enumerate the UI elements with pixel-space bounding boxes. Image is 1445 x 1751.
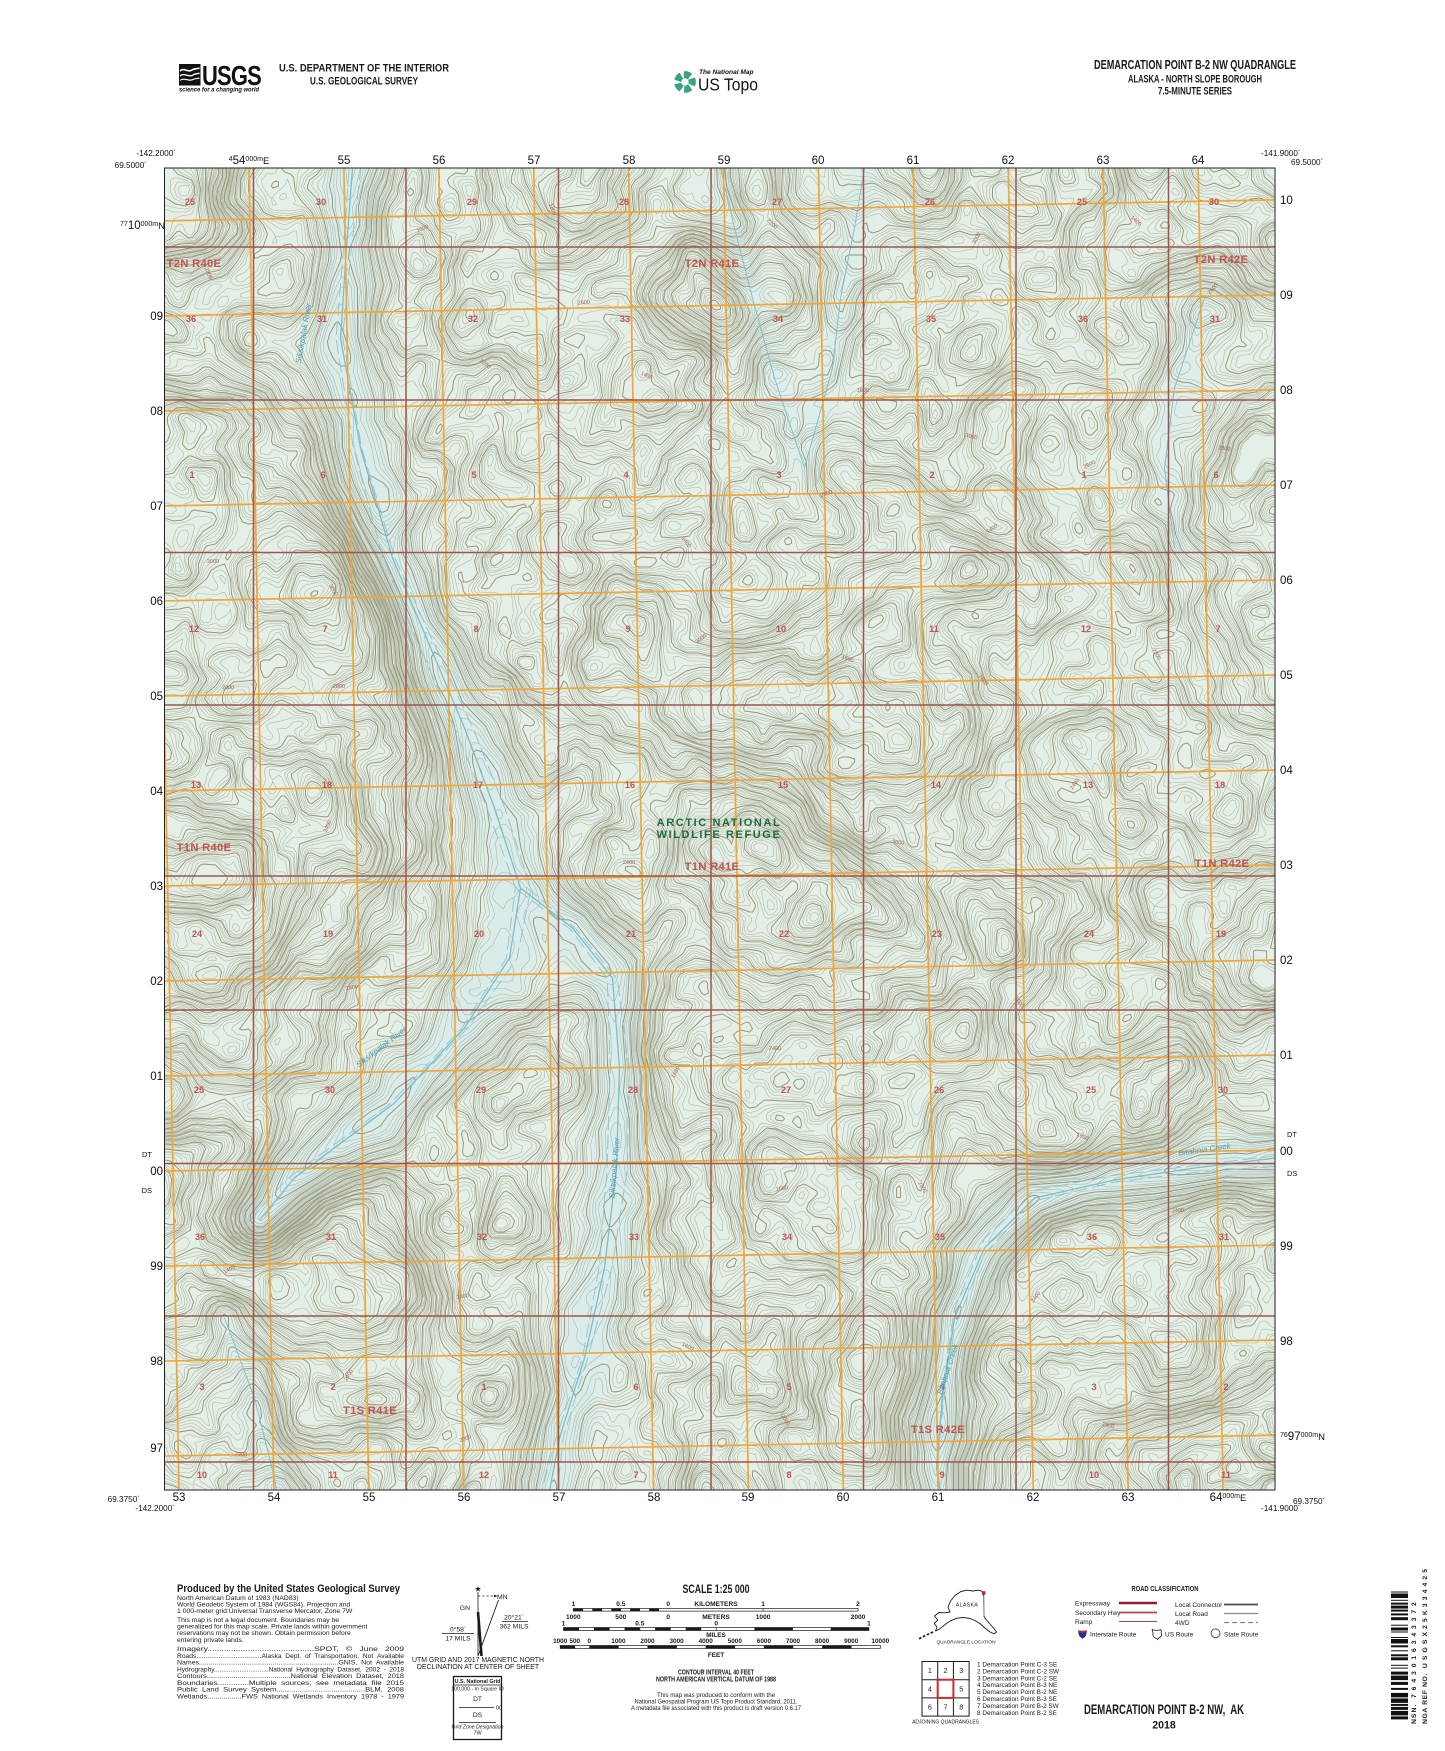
svg-text:UTM GRID AND 2017 MAGNETIC NOR: UTM GRID AND 2017 MAGNETIC NORTH <box>412 1657 544 1664</box>
svg-text:69.5000´: 69.5000´ <box>1291 158 1323 167</box>
svg-text:DEMARCATION POINT B-2 NW QUADR: DEMARCATION POINT B-2 NW QUADRANGLE <box>1094 57 1296 72</box>
svg-text:7000: 7000 <box>786 1638 801 1645</box>
svg-text:98: 98 <box>150 1356 163 1368</box>
svg-text:3000: 3000 <box>669 1638 684 1645</box>
svg-text:11: 11 <box>929 624 939 634</box>
svg-text:DS: DS <box>473 1712 483 1719</box>
svg-text:05: 05 <box>1280 670 1293 682</box>
svg-text:98: 98 <box>1280 1336 1293 1348</box>
svg-text:ROAD CLASSIFICATION: ROAD CLASSIFICATION <box>1132 1584 1199 1593</box>
svg-text:26: 26 <box>934 1085 944 1095</box>
svg-text:13: 13 <box>1083 780 1093 790</box>
svg-text:T1S R41E: T1S R41E <box>343 1405 397 1417</box>
svg-text:6: 6 <box>928 1703 932 1712</box>
svg-text:3: 3 <box>959 1666 963 1675</box>
svg-text:1: 1 <box>1081 470 1086 480</box>
svg-text:25: 25 <box>194 1085 204 1095</box>
svg-text:36: 36 <box>186 314 196 324</box>
svg-text:100,000 - m Square ID: 100,000 - m Square ID <box>451 1687 504 1693</box>
svg-text:34: 34 <box>773 314 784 324</box>
svg-text:03: 03 <box>150 881 163 893</box>
svg-text:97: 97 <box>150 1443 163 1455</box>
svg-text:35: 35 <box>926 314 936 324</box>
svg-text:500: 500 <box>569 1638 580 1645</box>
svg-text:2400: 2400 <box>1172 1208 1185 1215</box>
svg-text:25: 25 <box>185 197 195 207</box>
svg-text:26: 26 <box>925 197 935 207</box>
svg-text:8: 8 <box>786 1470 791 1480</box>
svg-text:69.5000´: 69.5000´ <box>115 161 147 170</box>
svg-text:0: 0 <box>714 1621 718 1628</box>
svg-text:36: 36 <box>195 1232 205 1242</box>
svg-text:25: 25 <box>1077 197 1087 207</box>
svg-text:0: 0 <box>666 1601 670 1608</box>
svg-text:01: 01 <box>1280 1050 1293 1062</box>
svg-text:entering private lands.: entering private lands. <box>177 1637 244 1644</box>
svg-text:54: 54 <box>268 1492 281 1504</box>
svg-text:0.5: 0.5 <box>616 1601 625 1608</box>
svg-text:9: 9 <box>939 1470 944 1480</box>
svg-text:55: 55 <box>363 1492 376 1504</box>
svg-text:3: 3 <box>1091 1382 1096 1392</box>
svg-text:06: 06 <box>150 596 163 608</box>
svg-text:20°21´: 20°21´ <box>504 1614 524 1622</box>
svg-text:5: 5 <box>471 470 476 480</box>
svg-text:science for a changing world: science for a changing world <box>179 87 260 94</box>
svg-text:20: 20 <box>474 929 484 939</box>
svg-text:3: 3 <box>776 470 781 480</box>
svg-text:27: 27 <box>772 197 782 207</box>
svg-text:09: 09 <box>1280 290 1293 302</box>
svg-text:A metadata file associated wit: A metadata file associated with this pro… <box>631 1705 801 1712</box>
svg-text:61: 61 <box>907 155 920 167</box>
svg-text:69.3750´: 69.3750´ <box>108 1495 140 1504</box>
svg-text:7: 7 <box>322 624 327 634</box>
svg-text:2: 2 <box>944 1666 948 1675</box>
svg-text:MN: MN <box>497 1594 508 1601</box>
svg-text:59: 59 <box>718 155 731 167</box>
svg-text:T2N R41E: T2N R41E <box>685 258 740 270</box>
svg-text:Secondary Hwy: Secondary Hwy <box>1075 1610 1121 1617</box>
svg-text:2200: 2200 <box>235 1451 248 1458</box>
svg-text:ALASKA: ALASKA <box>956 1603 979 1609</box>
svg-text:QUADRANGLE LOCATION: QUADRANGLE LOCATION <box>936 1640 996 1646</box>
svg-text:24: 24 <box>192 929 203 939</box>
svg-text:10: 10 <box>1089 1470 1099 1480</box>
svg-text:7.5-MINUTE SERIES: 7.5-MINUTE SERIES <box>1158 86 1232 98</box>
svg-text:DS: DS <box>1287 1169 1297 1178</box>
svg-text:29: 29 <box>467 197 477 207</box>
svg-text:2800: 2800 <box>222 685 235 692</box>
svg-text:64: 64 <box>1192 155 1205 167</box>
svg-text:9: 9 <box>625 624 630 634</box>
svg-text:59: 59 <box>742 1492 755 1504</box>
svg-text:53: 53 <box>173 1492 186 1504</box>
svg-text:T1N R40E: T1N R40E <box>177 842 232 854</box>
svg-text:1: 1 <box>189 470 194 480</box>
svg-text:30: 30 <box>1218 1085 1228 1095</box>
svg-text:18: 18 <box>1215 780 1225 790</box>
svg-text:-142.2000´: -142.2000´ <box>136 149 176 158</box>
svg-text:-142.2000´: -142.2000´ <box>135 1504 175 1513</box>
svg-text:0: 0 <box>666 1614 670 1621</box>
svg-text:32: 32 <box>468 314 478 324</box>
svg-text:Interstate Route: Interstate Route <box>1090 1632 1137 1639</box>
svg-text:15: 15 <box>778 780 788 790</box>
svg-text:57: 57 <box>528 155 541 167</box>
svg-text:00: 00 <box>1280 1146 1293 1158</box>
svg-text:00: 00 <box>496 1706 502 1712</box>
svg-text:2: 2 <box>1223 1382 1228 1392</box>
svg-text:62: 62 <box>1002 155 1015 167</box>
svg-text:1000: 1000 <box>553 1638 568 1645</box>
svg-text:14: 14 <box>931 780 942 790</box>
svg-text:30: 30 <box>316 197 326 207</box>
svg-text:24: 24 <box>1084 929 1095 939</box>
svg-text:35: 35 <box>935 1232 945 1242</box>
svg-text:8 Demarcation Point B-2 SE: 8 Demarcation Point B-2 SE <box>977 1710 1057 1717</box>
svg-text:63: 63 <box>1097 155 1110 167</box>
svg-text:62: 62 <box>1027 1492 1040 1504</box>
svg-text:2000: 2000 <box>640 1638 655 1645</box>
svg-text:9000: 9000 <box>844 1638 859 1645</box>
svg-text:2400: 2400 <box>769 1046 782 1053</box>
svg-text:07: 07 <box>1280 480 1293 492</box>
svg-text:Local Road: Local Road <box>1175 1611 1208 1618</box>
svg-text:DECLINATION AT CENTER OF SHEET: DECLINATION AT CENTER OF SHEET <box>417 1664 540 1671</box>
svg-text:4000: 4000 <box>699 1638 714 1645</box>
svg-text:3: 3 <box>199 1382 204 1392</box>
svg-text:36: 36 <box>1078 314 1088 324</box>
svg-text:SCALE 1:25 000: SCALE 1:25 000 <box>683 1582 750 1596</box>
svg-text:12: 12 <box>1081 624 1091 634</box>
svg-text:Produced by the United States: Produced by the United States Geological… <box>177 1583 400 1595</box>
svg-text:8: 8 <box>959 1703 963 1712</box>
svg-text:Ramp: Ramp <box>1075 1619 1093 1626</box>
svg-text:2800: 2800 <box>333 684 345 690</box>
svg-text:02: 02 <box>150 976 163 988</box>
svg-text:03: 03 <box>1280 860 1293 872</box>
svg-text:0°58´: 0°58´ <box>450 1626 466 1634</box>
svg-text:2000: 2000 <box>851 1614 866 1621</box>
svg-text:0.5: 0.5 <box>635 1621 644 1628</box>
svg-text:1600: 1600 <box>857 388 869 394</box>
svg-text:7: 7 <box>633 1470 638 1480</box>
svg-text:US Route: US Route <box>1165 1632 1194 1639</box>
svg-text:4: 4 <box>623 470 629 480</box>
svg-text:99: 99 <box>1280 1241 1293 1253</box>
svg-text:CONTOUR INTERVAL 40 FEET: CONTOUR INTERVAL 40 FEET <box>678 1670 755 1677</box>
svg-text:2: 2 <box>856 1601 860 1608</box>
svg-text:56: 56 <box>433 155 446 167</box>
svg-text:58: 58 <box>623 155 636 167</box>
svg-text:7W: 7W <box>473 1731 482 1737</box>
svg-text:5: 5 <box>786 1382 791 1392</box>
svg-text:1 000-meter grid:Universal Tra: 1 000-meter grid:Universal Transverse Me… <box>177 1608 353 1615</box>
svg-text:DT: DT <box>142 1150 152 1159</box>
svg-text:1: 1 <box>481 1382 486 1392</box>
svg-text:T2N R42E: T2N R42E <box>1194 254 1249 266</box>
svg-text:10: 10 <box>1280 195 1293 207</box>
svg-text:State Route: State Route <box>1224 1632 1259 1639</box>
svg-text:55: 55 <box>338 155 351 167</box>
svg-text:DT: DT <box>1287 1130 1297 1139</box>
svg-text:30: 30 <box>1209 197 1219 207</box>
svg-text:2400: 2400 <box>623 860 635 866</box>
svg-text:21: 21 <box>626 929 636 939</box>
svg-text:23: 23 <box>932 929 942 939</box>
svg-text:U.S. DEPARTMENT OF THE INTERIO: U.S. DEPARTMENT OF THE INTERIOR <box>279 63 449 75</box>
svg-text:1: 1 <box>562 1621 566 1628</box>
svg-text:8: 8 <box>473 624 478 634</box>
svg-text:28: 28 <box>619 197 629 207</box>
svg-text:2018: 2018 <box>1152 1720 1176 1732</box>
svg-text:-141.9000´: -141.9000´ <box>1261 149 1301 158</box>
svg-text:36: 36 <box>1087 1232 1097 1242</box>
svg-text:5000: 5000 <box>728 1638 743 1645</box>
svg-text:4: 4 <box>928 1684 932 1693</box>
svg-text:T1S R42E: T1S R42E <box>911 1424 965 1436</box>
svg-text:FEET: FEET <box>708 1652 724 1659</box>
svg-text:00: 00 <box>150 1166 163 1178</box>
svg-text:08: 08 <box>150 406 163 418</box>
svg-text:6: 6 <box>633 1382 638 1392</box>
svg-text:10000: 10000 <box>871 1638 889 1645</box>
svg-text:04: 04 <box>1280 765 1293 777</box>
svg-text:T2N R40E: T2N R40E <box>167 258 222 270</box>
svg-text:11: 11 <box>328 1470 338 1480</box>
svg-text:3000: 3000 <box>207 559 219 565</box>
svg-text:US Topo: US Topo <box>698 75 758 95</box>
svg-text:KILOMETERS: KILOMETERS <box>694 1601 738 1608</box>
svg-text:60: 60 <box>812 155 825 167</box>
svg-text:DEMARCATION POINT B-2 NW, AK: DEMARCATION POINT B-2 NW, AK <box>1084 1702 1244 1717</box>
svg-text:1000: 1000 <box>611 1638 626 1645</box>
svg-text:DT: DT <box>473 1696 482 1703</box>
svg-text:57: 57 <box>553 1492 566 1504</box>
svg-text:12: 12 <box>479 1470 489 1480</box>
svg-text:0: 0 <box>588 1638 592 1645</box>
svg-text:-141.9000´: -141.9000´ <box>1261 1504 1301 1513</box>
svg-text:DS: DS <box>142 1186 152 1195</box>
svg-text:Local Connector: Local Connector <box>1175 1602 1223 1609</box>
svg-text:ADJOINING QUADRANGLES: ADJOINING QUADRANGLES <box>912 1720 980 1726</box>
svg-text:07: 07 <box>150 501 163 513</box>
svg-text:NGA REF NO. U S G S X 2 5 K 3: NGA REF NO. U S G S X 2 5 K 3 3 4 4 2 5 <box>1422 1568 1429 1724</box>
svg-text:11: 11 <box>1221 1470 1231 1480</box>
svg-text:NSN. 7 6 4 3 0 1 6 3 4 3 3 7: NSN. 7 6 4 3 0 1 6 3 4 3 3 7 2 <box>1411 1601 1418 1724</box>
svg-text:01: 01 <box>150 1071 163 1083</box>
svg-text:16: 16 <box>625 780 635 790</box>
svg-text:6: 6 <box>320 470 325 480</box>
svg-text:99: 99 <box>150 1261 163 1273</box>
svg-text:U.S. National Grid: U.S. National Grid <box>455 1679 501 1685</box>
svg-text:GN: GN <box>460 1605 470 1612</box>
svg-text:2: 2 <box>929 470 934 480</box>
svg-text:5: 5 <box>959 1684 963 1693</box>
svg-text:2600: 2600 <box>577 299 590 306</box>
svg-text:1: 1 <box>928 1666 932 1675</box>
svg-text:31: 31 <box>1210 314 1220 324</box>
svg-text:31: 31 <box>1219 1232 1229 1242</box>
svg-text:60: 60 <box>837 1492 850 1504</box>
svg-text:17: 17 <box>473 780 483 790</box>
svg-text:4WD: 4WD <box>1175 1620 1190 1627</box>
svg-text:ARCTIC NATIONAL: ARCTIC NATIONAL <box>657 817 782 829</box>
svg-text:6000: 6000 <box>757 1638 772 1645</box>
svg-text:U.S. GEOLOGICAL SURVEY: U.S. GEOLOGICAL SURVEY <box>310 76 418 88</box>
svg-text:29: 29 <box>476 1085 486 1095</box>
svg-text:ALASKA - NORTH SLOPE BOROUGH: ALASKA - NORTH SLOPE BOROUGH <box>1128 74 1262 86</box>
svg-text:33: 33 <box>629 1232 639 1242</box>
svg-text:10: 10 <box>197 1470 207 1480</box>
svg-text:362 MILS: 362 MILS <box>499 1624 529 1631</box>
svg-text:02: 02 <box>1280 955 1293 967</box>
svg-text:34: 34 <box>782 1232 793 1242</box>
svg-text:05: 05 <box>150 691 163 703</box>
svg-text:8000: 8000 <box>815 1638 830 1645</box>
svg-text:06: 06 <box>1280 575 1293 587</box>
svg-text:Expressway: Expressway <box>1075 1600 1111 1607</box>
svg-text:08: 08 <box>1280 385 1293 397</box>
svg-text:1: 1 <box>761 1601 765 1608</box>
svg-text:30: 30 <box>325 1085 335 1095</box>
svg-text:18: 18 <box>322 780 332 790</box>
svg-text:Wetlands.................FWS: Wetlands.................FWS National We… <box>177 1693 404 1700</box>
svg-text:33: 33 <box>620 314 630 324</box>
svg-text:25: 25 <box>1086 1085 1096 1095</box>
svg-text:31: 31 <box>317 314 327 324</box>
svg-text:63: 63 <box>1122 1492 1135 1504</box>
svg-text:500: 500 <box>615 1614 626 1621</box>
svg-text:28: 28 <box>628 1085 638 1095</box>
svg-text:13: 13 <box>191 780 201 790</box>
svg-text:27: 27 <box>781 1085 791 1095</box>
svg-text:2: 2 <box>330 1382 335 1392</box>
svg-text:32: 32 <box>477 1232 487 1242</box>
svg-text:09: 09 <box>150 311 163 323</box>
svg-text:61: 61 <box>932 1492 945 1504</box>
svg-text:17 MILS: 17 MILS <box>445 1636 471 1643</box>
svg-text:58: 58 <box>648 1492 661 1504</box>
svg-text:22: 22 <box>779 929 789 939</box>
svg-text:56: 56 <box>458 1492 471 1504</box>
svg-text:WILDLIFE REFUGE: WILDLIFE REFUGE <box>657 829 782 841</box>
svg-text:19: 19 <box>323 929 333 939</box>
svg-text:04: 04 <box>150 786 163 798</box>
svg-text:1: 1 <box>571 1601 575 1608</box>
svg-text:7: 7 <box>1215 624 1220 634</box>
svg-text:1: 1 <box>867 1621 871 1628</box>
svg-text:7: 7 <box>944 1703 948 1712</box>
svg-text:1000: 1000 <box>566 1614 581 1621</box>
svg-text:12: 12 <box>189 624 199 634</box>
svg-text:10: 10 <box>776 624 786 634</box>
svg-text:31: 31 <box>326 1232 336 1242</box>
svg-text:NORTH AMERICAN VERTICAL DATUM: NORTH AMERICAN VERTICAL DATUM OF 1988 <box>656 1677 776 1684</box>
svg-text:19: 19 <box>1216 929 1226 939</box>
svg-text:T1N R41E: T1N R41E <box>685 861 740 873</box>
svg-text:6: 6 <box>1213 470 1218 480</box>
svg-text:T1N R42E: T1N R42E <box>1195 858 1250 870</box>
svg-text:1000: 1000 <box>756 1614 771 1621</box>
